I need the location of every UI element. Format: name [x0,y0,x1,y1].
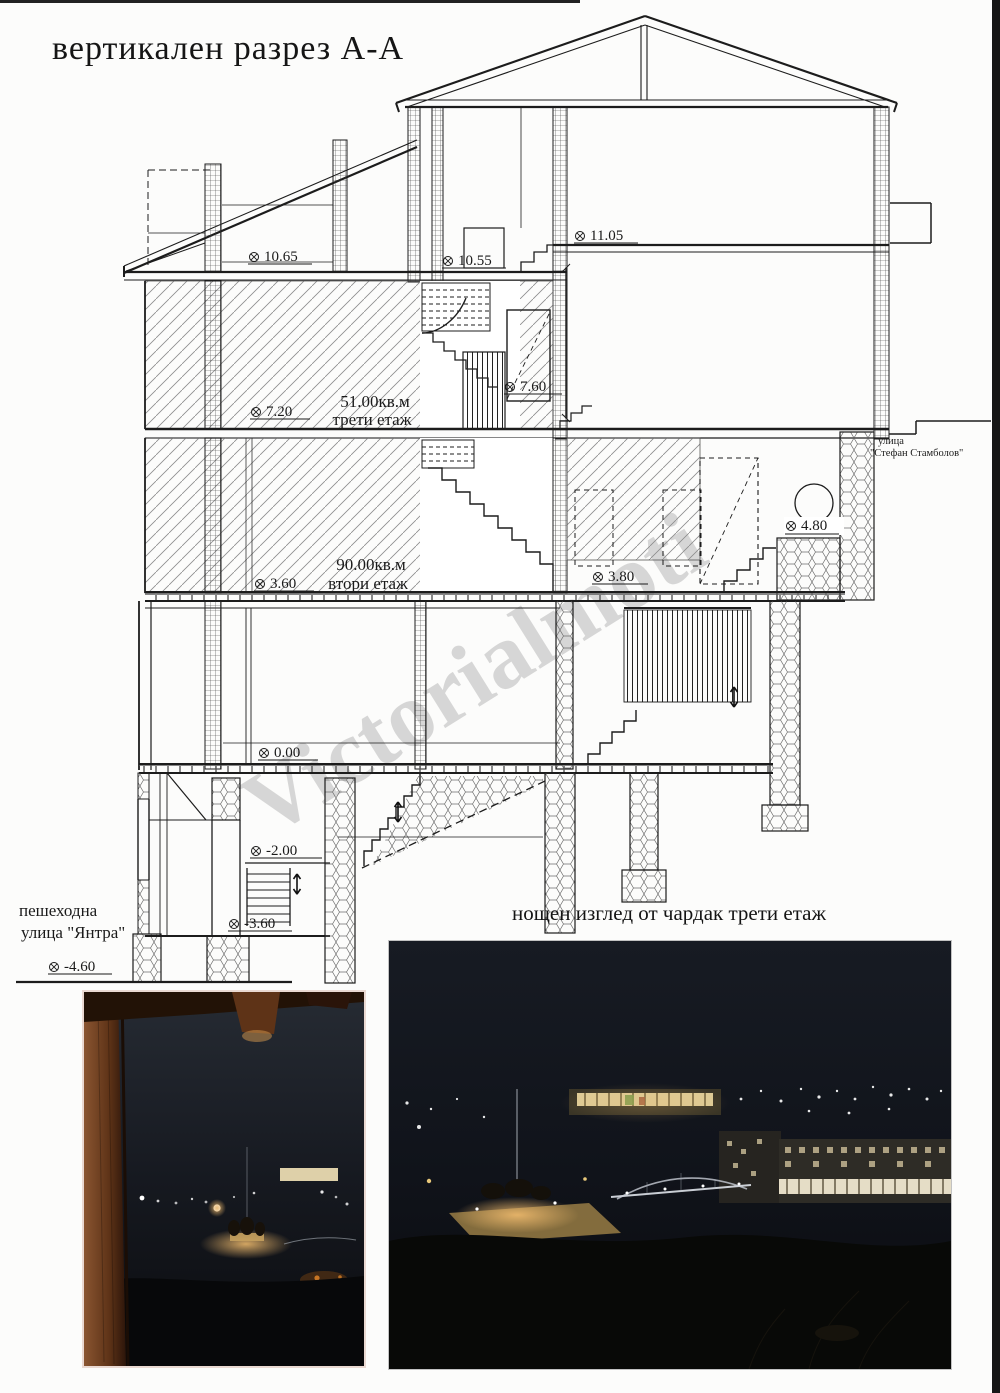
svg-text:10.65: 10.65 [264,249,298,265]
room-name-third-floor: трети етаж [333,410,412,429]
svg-text:-4.60: -4.60 [64,959,95,975]
svg-text:3.60: 3.60 [270,576,296,592]
svg-text:4.80: 4.80 [801,518,827,534]
svg-text:3.80: 3.80 [608,569,634,585]
level-marker: -2.00 [250,843,322,859]
porch-night-scene [84,992,364,1366]
hotel-buildings [719,1131,951,1203]
room-name-second-floor: втори етаж [328,574,408,593]
level-marker: -4.60 [48,959,112,975]
level-marker: 4.80 [784,517,844,535]
svg-text:-3.60: -3.60 [244,916,275,932]
street-right-line2: "Стефан Стамболов" [870,448,963,459]
svg-text:7.20: 7.20 [266,404,292,420]
photos-caption: нощен изглед от чардак трети етаж [388,901,950,926]
street-left-line2: улица "Янтра" [21,923,125,942]
street-left-line1: пешеходна [19,901,98,920]
street-right-line1: улица [878,436,904,447]
svg-text:7.60: 7.60 [520,379,546,395]
photo-porch-night-view [82,990,366,1368]
level-marker: -3.60 [228,916,292,932]
svg-text:11.05: 11.05 [590,228,623,244]
room-area-third-floor: 51.00кв.м [340,392,410,411]
city-night-scene [389,941,951,1369]
building-section-linework [16,16,991,983]
svg-text:0.00: 0.00 [274,745,300,761]
svg-text:10.55: 10.55 [458,253,492,269]
room-area-second-floor: 90.00кв.м [336,555,406,574]
level-marker: 11.05 [574,228,638,244]
level-marker: 10.65 [248,249,312,265]
dim-light-patch [815,1325,859,1341]
palace-building [560,1083,730,1123]
foreground-gorge [389,1235,951,1369]
level-marker: 10.55 [442,253,506,269]
svg-text:-2.00: -2.00 [266,843,297,859]
photo-city-night-view [388,940,952,1370]
